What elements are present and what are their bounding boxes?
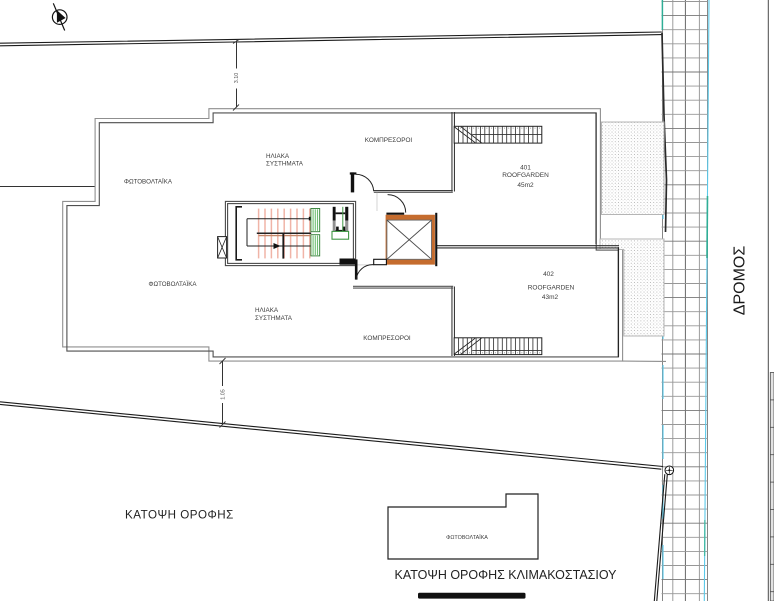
svg-text:ΚΑΤΟΨΗ ΟΡΟΦΗΣ ΚΛΙΜΑΚΟΣΤΑΣΙΟΥ: ΚΑΤΟΨΗ ΟΡΟΦΗΣ ΚΛΙΜΑΚΟΣΤΑΣΙΟΥ: [395, 568, 618, 582]
svg-text:ΣΥΣΤΗΜΑΤΑ: ΣΥΣΤΗΜΑΤΑ: [266, 160, 304, 167]
svg-text:ROOFGARDEN: ROOFGARDEN: [502, 172, 549, 179]
svg-text:43m2: 43m2: [542, 294, 559, 301]
svg-text:45m2: 45m2: [517, 182, 534, 189]
svg-text:ΚΑΤΟΨΗ ΟΡΟΦΗΣ: ΚΑΤΟΨΗ ΟΡΟΦΗΣ: [125, 508, 234, 521]
svg-text:ΗΛΙΑΚΑ: ΗΛΙΑΚΑ: [255, 307, 279, 314]
svg-text:ΦΩΤΟΒΟΛΤΑΪΚΑ: ΦΩΤΟΒΟΛΤΑΪΚΑ: [124, 179, 173, 186]
svg-text:ΣΥΣΤΗΜΑΤΑ: ΣΥΣΤΗΜΑΤΑ: [255, 315, 293, 322]
svg-text:402: 402: [543, 271, 554, 278]
svg-text:401: 401: [520, 165, 531, 172]
svg-text:ΔΡΟΜΟΣ: ΔΡΟΜΟΣ: [731, 246, 748, 316]
svg-text:ΚΟΜΠΡΕΣΟΡΟΙ: ΚΟΜΠΡΕΣΟΡΟΙ: [363, 335, 411, 342]
svg-text:ΗΛΙΑΚΑ: ΗΛΙΑΚΑ: [266, 153, 290, 160]
svg-text:ΦΩΤΟΒΟΛΤΑΪΚΑ: ΦΩΤΟΒΟΛΤΑΪΚΑ: [446, 534, 488, 541]
svg-text:3.10: 3.10: [234, 73, 240, 84]
svg-text:1.05: 1.05: [221, 389, 227, 400]
svg-text:ΦΩΤΟΒΟΛΤΑΪΚΑ: ΦΩΤΟΒΟΛΤΑΪΚΑ: [149, 281, 198, 288]
svg-text:ΚΟΜΠΡΕΣΟΡΟΙ: ΚΟΜΠΡΕΣΟΡΟΙ: [365, 137, 413, 144]
svg-text:ROOFGARDEN: ROOFGARDEN: [528, 284, 575, 291]
